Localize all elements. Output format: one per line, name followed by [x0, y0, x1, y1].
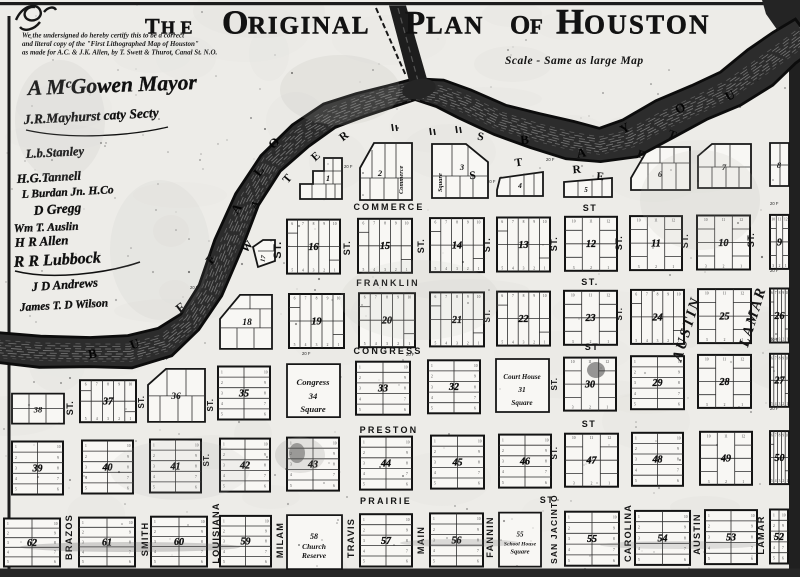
svg-text:1: 1: [742, 480, 744, 484]
svg-text:10: 10: [543, 220, 547, 224]
svg-text:8: 8: [264, 464, 266, 468]
svg-text:6: 6: [54, 560, 56, 564]
svg-text:12: 12: [742, 434, 746, 438]
svg-text:3: 3: [568, 537, 570, 541]
svg-text:4: 4: [775, 479, 777, 483]
svg-text:10: 10: [477, 517, 481, 521]
svg-text:3: 3: [572, 340, 574, 344]
svg-text:5: 5: [85, 417, 87, 421]
svg-text:7: 7: [545, 470, 547, 474]
svg-text:5: 5: [7, 560, 9, 564]
svg-text:5: 5: [435, 341, 437, 345]
svg-text:FANNIN: FANNIN: [485, 516, 495, 557]
svg-text:H R Allen: H R Allen: [13, 232, 68, 250]
svg-text:ST.: ST.: [137, 395, 146, 408]
svg-text:7: 7: [445, 221, 447, 225]
svg-text:ST.: ST.: [342, 241, 352, 256]
svg-text:BRAZOS: BRAZOS: [64, 514, 74, 560]
svg-text:10: 10: [637, 219, 641, 223]
svg-text:8: 8: [523, 294, 525, 298]
svg-text:8: 8: [751, 536, 753, 540]
svg-text:2: 2: [431, 375, 433, 379]
svg-text:Court House: Court House: [503, 373, 540, 381]
svg-text:4: 4: [512, 341, 514, 345]
svg-text:9: 9: [404, 376, 406, 380]
svg-text:9: 9: [751, 525, 753, 529]
svg-text:8: 8: [523, 220, 525, 224]
svg-text:2: 2: [363, 528, 365, 532]
svg-text:47: 47: [586, 456, 598, 467]
svg-text:PRAIRIE: PRAIRIE: [360, 496, 412, 506]
svg-text:9: 9: [406, 451, 408, 455]
svg-text:9: 9: [406, 528, 408, 532]
svg-text:8: 8: [545, 460, 547, 464]
svg-text:5: 5: [635, 339, 637, 343]
svg-text:10: 10: [707, 434, 711, 438]
svg-text:9: 9: [333, 452, 335, 456]
svg-text:5: 5: [638, 558, 640, 562]
svg-text:PRESTON: PRESTON: [360, 425, 419, 435]
svg-text:10: 10: [705, 292, 709, 296]
svg-text:10: 10: [478, 439, 482, 443]
svg-text:3: 3: [316, 343, 318, 347]
svg-text:10: 10: [264, 370, 268, 374]
svg-text:6: 6: [771, 434, 773, 438]
svg-text:ST: ST: [583, 203, 598, 213]
svg-text:6: 6: [264, 485, 266, 489]
svg-text:2: 2: [359, 376, 361, 380]
svg-text:2: 2: [221, 381, 223, 385]
svg-text:4: 4: [305, 343, 307, 347]
svg-text:10: 10: [771, 217, 775, 221]
svg-text:6: 6: [85, 383, 87, 387]
svg-text:Reserve: Reserve: [301, 551, 327, 560]
svg-text:3: 3: [705, 265, 707, 269]
svg-text:2: 2: [363, 451, 365, 455]
svg-text:2: 2: [433, 528, 435, 532]
svg-text:10: 10: [264, 442, 268, 446]
svg-text:9: 9: [323, 222, 325, 226]
svg-text:8: 8: [678, 381, 680, 385]
svg-text:30: 30: [584, 380, 595, 391]
svg-text:7: 7: [54, 551, 56, 555]
svg-text:9: 9: [684, 526, 686, 530]
svg-text:1: 1: [608, 482, 610, 486]
svg-text:Square: Square: [511, 399, 533, 407]
svg-text:3: 3: [7, 541, 9, 545]
svg-text:4: 4: [445, 341, 447, 345]
svg-text:4: 4: [635, 468, 637, 472]
svg-text:5: 5: [433, 560, 435, 564]
svg-text:3: 3: [359, 387, 361, 391]
svg-text:3: 3: [634, 381, 636, 385]
svg-text:10: 10: [785, 356, 789, 360]
svg-text:5: 5: [363, 268, 365, 272]
svg-text:7: 7: [474, 396, 476, 400]
svg-text:5: 5: [290, 484, 292, 488]
svg-text:CAROLINA: CAROLINA: [623, 504, 633, 562]
svg-text:29: 29: [652, 378, 663, 389]
svg-text:10: 10: [785, 291, 789, 295]
svg-text:9: 9: [667, 292, 669, 296]
svg-text:5: 5: [154, 560, 156, 564]
svg-text:1: 1: [363, 440, 365, 444]
svg-text:14: 14: [452, 241, 462, 252]
svg-text:12: 12: [606, 293, 610, 297]
svg-text:10: 10: [785, 434, 789, 438]
svg-text:10: 10: [572, 436, 576, 440]
svg-text:9: 9: [57, 456, 59, 460]
svg-text:5: 5: [82, 560, 84, 564]
svg-text:22: 22: [518, 314, 529, 325]
svg-text:11: 11: [723, 292, 727, 296]
svg-text:6: 6: [406, 560, 408, 564]
svg-text:10: 10: [406, 440, 410, 444]
svg-text:44: 44: [380, 459, 391, 470]
svg-text:8: 8: [265, 540, 267, 544]
svg-text:4: 4: [96, 417, 98, 421]
svg-text:1: 1: [85, 444, 87, 448]
svg-text:1: 1: [326, 173, 330, 183]
svg-text:ST.: ST.: [206, 398, 215, 411]
svg-text:6: 6: [545, 481, 547, 485]
svg-text:12: 12: [784, 217, 788, 221]
svg-text:59: 59: [241, 537, 251, 548]
svg-text:1: 1: [338, 343, 340, 347]
svg-text:Square: Square: [300, 404, 325, 414]
svg-text:5: 5: [223, 560, 225, 564]
svg-text:3: 3: [502, 460, 504, 464]
svg-text:7: 7: [775, 434, 777, 438]
svg-text:20 F: 20 F: [487, 179, 496, 184]
svg-text:1: 1: [607, 266, 609, 270]
svg-text:55: 55: [517, 531, 525, 539]
svg-text:4: 4: [431, 396, 433, 400]
svg-text:2: 2: [533, 341, 535, 345]
svg-text:9: 9: [613, 526, 615, 530]
svg-text:1: 1: [740, 265, 742, 269]
svg-text:3: 3: [708, 480, 710, 484]
svg-text:13: 13: [519, 240, 529, 251]
svg-text:7: 7: [264, 474, 266, 478]
svg-text:7: 7: [646, 292, 648, 296]
svg-text:4: 4: [221, 402, 223, 406]
svg-text:12: 12: [740, 292, 744, 296]
svg-text:8: 8: [779, 356, 781, 360]
svg-text:3: 3: [573, 266, 575, 270]
svg-text:8: 8: [57, 466, 59, 470]
svg-text:1: 1: [785, 264, 787, 268]
svg-text:6: 6: [613, 559, 615, 563]
svg-text:8: 8: [684, 536, 686, 540]
svg-text:6: 6: [404, 408, 406, 412]
svg-text:7: 7: [265, 550, 267, 554]
svg-text:6: 6: [435, 221, 437, 225]
svg-text:49: 49: [720, 454, 731, 465]
svg-text:57: 57: [381, 536, 392, 547]
svg-text:2: 2: [635, 447, 637, 451]
svg-text:10: 10: [571, 293, 575, 297]
svg-text:4: 4: [502, 470, 504, 474]
svg-text:We the undersigned do hereby c: We the undersigned do hereby certify thi…: [22, 32, 185, 40]
svg-text:10: 10: [677, 292, 681, 296]
svg-text:10: 10: [477, 221, 481, 225]
svg-text:8: 8: [474, 385, 476, 389]
svg-text:9: 9: [327, 297, 329, 301]
svg-text:2: 2: [467, 341, 469, 345]
svg-text:20 F: 20 F: [546, 157, 555, 162]
svg-text:20 F: 20 F: [770, 337, 779, 342]
svg-text:4: 4: [568, 548, 570, 552]
svg-text:2: 2: [589, 406, 591, 410]
svg-text:3: 3: [107, 417, 109, 421]
svg-text:9: 9: [118, 383, 120, 387]
svg-text:58: 58: [310, 532, 318, 541]
svg-text:6: 6: [501, 220, 503, 224]
svg-text:23: 23: [585, 313, 596, 324]
svg-text:1: 1: [15, 445, 17, 449]
svg-text:1: 1: [433, 517, 435, 521]
svg-text:5: 5: [15, 488, 17, 492]
svg-text:1: 1: [607, 340, 609, 344]
svg-text:10: 10: [337, 297, 341, 301]
svg-text:6: 6: [478, 482, 480, 486]
svg-text:7: 7: [512, 220, 514, 224]
svg-text:1: 1: [708, 514, 710, 518]
svg-text:16: 16: [309, 242, 319, 253]
svg-text:1: 1: [130, 417, 132, 421]
svg-text:1: 1: [786, 402, 788, 406]
svg-text:1: 1: [634, 360, 636, 364]
svg-text:TRAVIS: TRAVIS: [346, 518, 356, 558]
svg-text:E: E: [596, 171, 605, 184]
svg-text:LAMAR: LAMAR: [756, 515, 766, 554]
svg-text:3: 3: [223, 540, 225, 544]
svg-text:2: 2: [533, 267, 535, 271]
svg-text:25: 25: [719, 312, 730, 323]
svg-text:5: 5: [434, 482, 436, 486]
svg-text:7: 7: [404, 397, 406, 401]
svg-text:8: 8: [406, 462, 408, 466]
svg-text:34: 34: [308, 391, 318, 401]
svg-text:2: 2: [782, 402, 784, 406]
svg-text:6: 6: [265, 560, 267, 564]
svg-text:4: 4: [359, 397, 361, 401]
svg-text:3: 3: [706, 338, 708, 342]
svg-text:5: 5: [634, 402, 636, 406]
svg-text:3: 3: [635, 458, 637, 462]
svg-text:2: 2: [724, 338, 726, 342]
svg-text:2: 2: [15, 456, 17, 460]
svg-text:6: 6: [678, 402, 680, 406]
svg-text:1: 1: [223, 519, 225, 523]
svg-text:10: 10: [705, 357, 709, 361]
svg-text:7: 7: [478, 471, 480, 475]
svg-text:4: 4: [290, 473, 292, 477]
svg-text:35: 35: [238, 388, 249, 399]
svg-text:5: 5: [635, 479, 637, 483]
svg-text:20 F: 20 F: [770, 201, 779, 206]
svg-text:9: 9: [264, 453, 266, 457]
svg-text:10: 10: [129, 521, 133, 525]
svg-text:1: 1: [359, 366, 361, 370]
svg-text:24: 24: [652, 312, 663, 323]
svg-text:8: 8: [456, 221, 458, 225]
svg-text:8: 8: [316, 297, 318, 301]
svg-text:6: 6: [201, 560, 203, 564]
svg-text:1: 1: [431, 364, 433, 368]
svg-text:MILAM: MILAM: [275, 522, 285, 558]
svg-text:9: 9: [265, 530, 267, 534]
svg-text:ST.: ST.: [746, 233, 756, 248]
svg-text:6: 6: [771, 356, 773, 360]
svg-text:6: 6: [684, 558, 686, 562]
svg-text:8: 8: [779, 291, 781, 295]
svg-text:6: 6: [363, 221, 365, 225]
svg-text:5: 5: [291, 269, 293, 273]
svg-text:2: 2: [667, 339, 669, 343]
svg-text:5: 5: [359, 408, 361, 412]
svg-text:6: 6: [635, 292, 637, 296]
svg-text:8: 8: [264, 392, 266, 396]
svg-text:4: 4: [646, 339, 648, 343]
svg-text:8: 8: [677, 458, 679, 462]
svg-text:2: 2: [725, 480, 727, 484]
svg-text:6: 6: [501, 294, 503, 298]
svg-text:ST: ST: [585, 342, 600, 352]
svg-text:55: 55: [587, 534, 597, 545]
svg-text:ST.: ST.: [549, 237, 559, 252]
svg-text:20 F: 20 F: [770, 268, 779, 273]
svg-text:8: 8: [613, 537, 615, 541]
svg-text:7: 7: [613, 548, 615, 552]
svg-text:39: 39: [32, 463, 43, 474]
svg-text:4: 4: [223, 550, 225, 554]
svg-text:9: 9: [782, 356, 784, 360]
svg-text:5: 5: [221, 413, 223, 417]
svg-text:6: 6: [751, 557, 753, 561]
svg-text:ST.: ST.: [581, 277, 599, 287]
svg-text:6: 6: [782, 557, 784, 561]
svg-text:1: 1: [786, 479, 788, 483]
svg-text:6: 6: [264, 413, 266, 417]
svg-text:as made for A.C. & J.K. Allen,: as made for A.C. & J.K. Allen, by T. Swe…: [22, 49, 218, 57]
svg-text:4: 4: [434, 471, 436, 475]
svg-text:1: 1: [434, 439, 436, 443]
svg-text:8: 8: [478, 461, 480, 465]
svg-text:36: 36: [170, 392, 181, 402]
svg-text:2: 2: [377, 168, 383, 178]
svg-text:2: 2: [85, 455, 87, 459]
svg-text:7: 7: [512, 294, 514, 298]
svg-text:11: 11: [724, 434, 728, 438]
svg-text:3: 3: [459, 162, 465, 172]
svg-text:5: 5: [584, 186, 588, 194]
svg-text:5: 5: [501, 267, 503, 271]
svg-text:Square: Square: [510, 549, 529, 556]
svg-text:ST.: ST.: [550, 446, 559, 459]
svg-text:10: 10: [333, 441, 337, 445]
svg-text:2: 2: [723, 265, 725, 269]
svg-text:2: 2: [118, 417, 120, 421]
svg-text:4: 4: [363, 472, 365, 476]
svg-text:6: 6: [477, 560, 479, 564]
svg-text:6: 6: [406, 483, 408, 487]
svg-text:48: 48: [652, 455, 663, 466]
svg-text:ST.: ST.: [550, 377, 559, 390]
svg-text:2: 2: [708, 525, 710, 529]
svg-text:3: 3: [638, 536, 640, 540]
svg-text:9: 9: [477, 528, 479, 532]
svg-text:4: 4: [512, 267, 514, 271]
svg-text:7: 7: [333, 473, 335, 477]
svg-text:52: 52: [774, 532, 784, 543]
svg-text:4: 4: [302, 269, 304, 273]
svg-text:1: 1: [544, 267, 546, 271]
svg-text:5: 5: [431, 407, 433, 411]
svg-text:Congress: Congress: [297, 377, 331, 387]
svg-text:2: 2: [327, 343, 329, 347]
svg-text:7: 7: [775, 356, 777, 360]
svg-text:9: 9: [474, 375, 476, 379]
svg-text:2: 2: [638, 526, 640, 530]
svg-text:LOUISIANA: LOUISIANA: [211, 502, 221, 563]
svg-text:10: 10: [265, 519, 269, 523]
svg-text:8: 8: [107, 383, 109, 387]
svg-text:2: 2: [590, 266, 592, 270]
svg-text:4: 4: [7, 551, 9, 555]
svg-text:1: 1: [7, 522, 9, 526]
svg-text:B: B: [520, 132, 530, 148]
svg-text:1: 1: [786, 338, 788, 342]
svg-text:5: 5: [85, 487, 87, 491]
svg-text:9: 9: [533, 220, 535, 224]
svg-text:3: 3: [708, 536, 710, 540]
svg-text:COMMERCE: COMMERCE: [353, 202, 424, 212]
svg-text:Commerce: Commerce: [398, 165, 405, 194]
svg-text:6: 6: [294, 297, 296, 301]
svg-text:2: 2: [782, 479, 784, 483]
svg-text:9: 9: [677, 447, 679, 451]
svg-text:10: 10: [545, 438, 549, 442]
svg-text:50: 50: [775, 453, 785, 464]
svg-text:3: 3: [431, 385, 433, 389]
svg-text:12: 12: [586, 239, 596, 250]
svg-text:5: 5: [501, 341, 503, 345]
svg-text:9: 9: [478, 450, 480, 454]
svg-text:7: 7: [477, 549, 479, 553]
svg-text:9: 9: [264, 381, 266, 385]
svg-text:3: 3: [779, 338, 781, 342]
svg-text:9: 9: [201, 530, 203, 534]
svg-text:7: 7: [305, 297, 307, 301]
svg-text:18: 18: [242, 318, 252, 328]
svg-text:5: 5: [773, 557, 775, 561]
svg-text:ST.: ST.: [482, 238, 492, 253]
svg-text:4: 4: [433, 549, 435, 553]
svg-text:20 F: 20 F: [406, 352, 415, 357]
svg-text:2: 2: [154, 530, 156, 534]
svg-text:28: 28: [719, 377, 730, 388]
svg-text:2: 2: [724, 403, 726, 407]
svg-text:1: 1: [502, 438, 504, 442]
svg-text:7: 7: [775, 291, 777, 295]
svg-text:1: 1: [635, 437, 637, 441]
svg-text:2: 2: [591, 482, 593, 486]
svg-text:1: 1: [154, 520, 156, 524]
svg-text:11: 11: [589, 293, 593, 297]
svg-text:7: 7: [782, 546, 784, 550]
